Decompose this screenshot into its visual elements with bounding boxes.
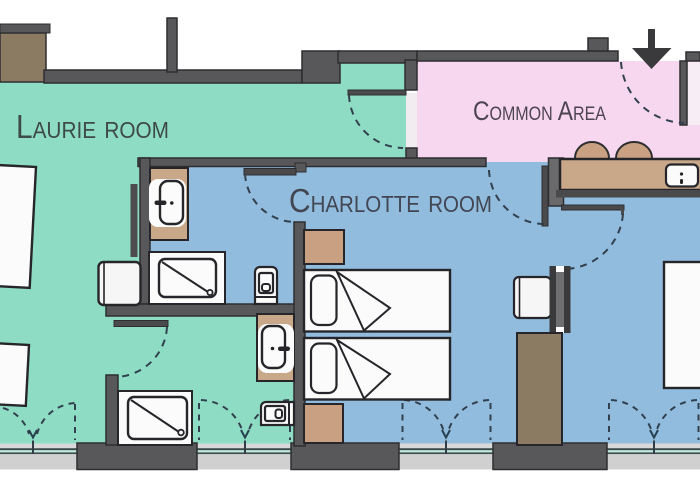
svg-text:Common Area: Common Area	[473, 96, 606, 126]
svg-text:Charlotte room: Charlotte room	[289, 183, 492, 220]
svg-text:Laurie room: Laurie room	[16, 108, 169, 145]
